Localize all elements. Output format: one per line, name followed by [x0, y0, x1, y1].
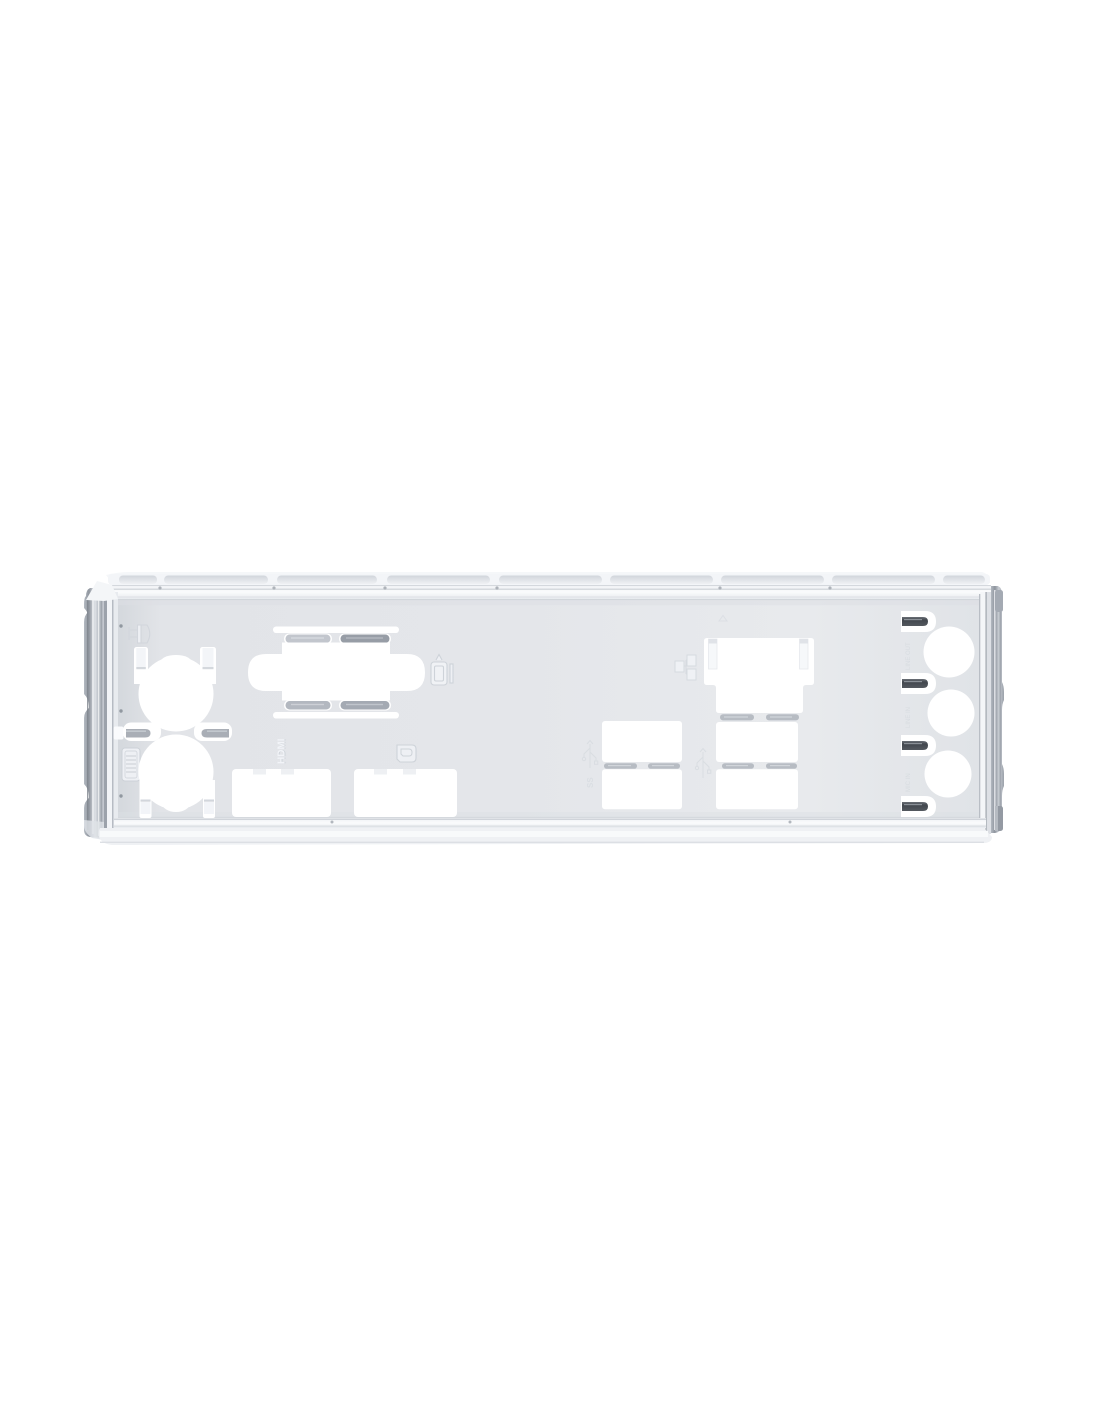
svg-text:MIC IN: MIC IN [906, 773, 912, 792]
svg-text:LINE IN: LINE IN [906, 707, 912, 728]
svg-text:HDMI: HDMI [277, 738, 288, 764]
svg-text:SS: SS [586, 777, 595, 788]
svg-text:LINE OUT: LINE OUT [906, 642, 912, 670]
